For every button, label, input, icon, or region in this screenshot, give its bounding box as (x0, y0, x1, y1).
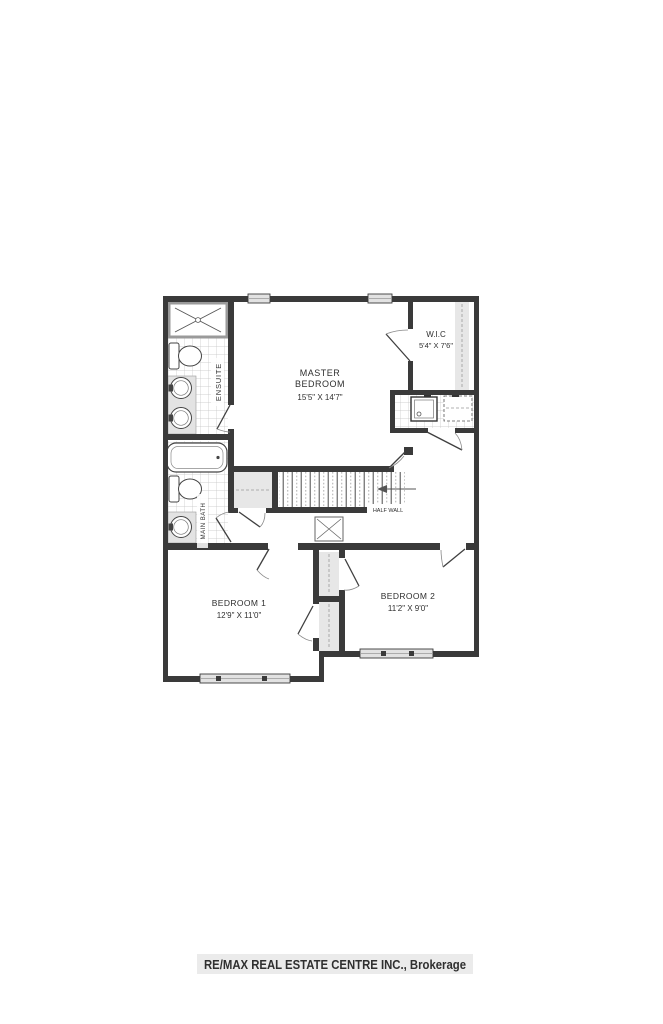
floor-plan: MASTER BEDROOM 15'5" X 14'7" W.I.C 5'4" … (0, 0, 663, 1024)
stairs (279, 472, 416, 507)
master-bedroom-label-line1: MASTER (300, 368, 341, 378)
bedroom2-dims: 11'2" X 9'0" (388, 604, 428, 613)
wall-segment (163, 296, 168, 682)
window (368, 294, 392, 303)
wall-segment (228, 302, 234, 405)
wall-segment (163, 434, 234, 440)
bedroom1-label: BEDROOM 1 (212, 598, 267, 608)
wall-segment (339, 550, 345, 558)
bedroom2-label: BEDROOM 2 (381, 591, 436, 601)
wall-segment (390, 390, 479, 395)
wall-segment (272, 466, 278, 513)
watermark-text: RE/MAX REAL ESTATE CENTRE INC., Brokerag… (204, 958, 466, 972)
wall-segment (313, 550, 319, 604)
wic-label: W.I.C (426, 330, 446, 339)
wall-segment (228, 466, 394, 472)
wall-segment (408, 302, 413, 329)
wall-segment (266, 508, 278, 513)
wall-segment (339, 590, 345, 651)
dryer-icon (444, 392, 472, 421)
wall-segment (390, 390, 395, 433)
washer-icon (411, 392, 437, 421)
window (200, 674, 290, 683)
double-sink-vanity (168, 376, 196, 434)
main-bath-label: MAIN BATH (201, 503, 207, 540)
wall-segment (408, 361, 413, 392)
master-bedroom-label-line2: BEDROOM (295, 379, 345, 389)
bedroom2-closet-door (344, 559, 359, 590)
wic-dims: 5'4" X 7'6" (419, 341, 453, 350)
wall-segment (163, 543, 268, 550)
wic-door (386, 330, 410, 361)
wall-segment (228, 466, 234, 510)
half-wall-label: HALF WALL (373, 508, 403, 514)
master-bedroom-door (389, 452, 405, 468)
door-jamb (404, 447, 413, 455)
wall-segment (228, 508, 238, 513)
window (248, 294, 270, 303)
bedroom1-closet-door (298, 606, 313, 641)
wall-segment (313, 638, 319, 651)
bathtub-icon (167, 443, 227, 472)
wall-segment (466, 543, 479, 550)
sink-vanity (168, 512, 196, 543)
master-bedroom-dims: 15'5" X 14'7" (297, 393, 342, 402)
linen-closet-door (239, 512, 265, 527)
bedroom1-door (257, 549, 269, 579)
attic-access-icon (315, 517, 343, 541)
bedroom1-dims: 12'9" X 11'0" (217, 611, 262, 620)
wall-segment (163, 296, 479, 302)
laundry-door (427, 432, 462, 450)
ensuite-label: ENSUITE (214, 363, 223, 401)
wall-segment (474, 296, 479, 657)
wall-segment (390, 428, 428, 433)
watermark: RE/MAX REAL ESTATE CENTRE INC., Brokerag… (197, 954, 473, 974)
window (360, 649, 433, 658)
wall-segment (455, 428, 479, 433)
floorplan-page: MASTER BEDROOM 15'5" X 14'7" W.I.C 5'4" … (0, 0, 663, 1024)
shower-icon (169, 303, 227, 337)
bedroom2-door (441, 549, 465, 567)
wall-segment (298, 543, 440, 550)
